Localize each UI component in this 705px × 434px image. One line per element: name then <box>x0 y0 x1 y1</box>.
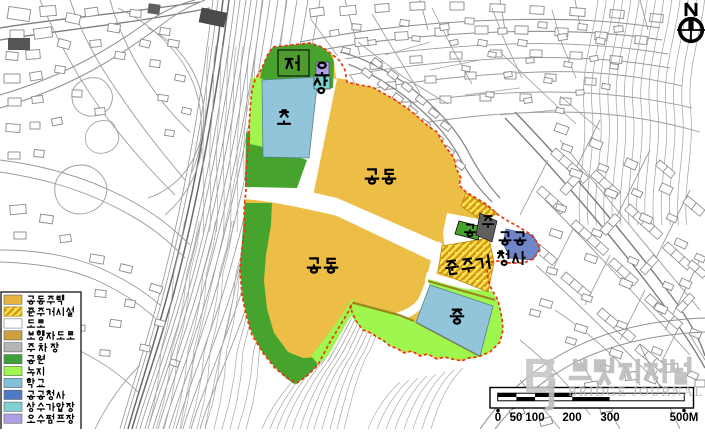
svg-text:0: 0 <box>495 412 501 424</box>
svg-text:50: 50 <box>510 412 523 424</box>
svg-text:100: 100 <box>525 412 544 424</box>
svg-text:200: 200 <box>562 412 581 424</box>
svg-text:500M: 500M <box>670 412 699 424</box>
svg-text:j: j <box>545 367 557 411</box>
svg-text:300: 300 <box>600 412 619 424</box>
svg-text:BRIDGE JOURNAL: BRIDGE JOURNAL <box>568 384 704 399</box>
